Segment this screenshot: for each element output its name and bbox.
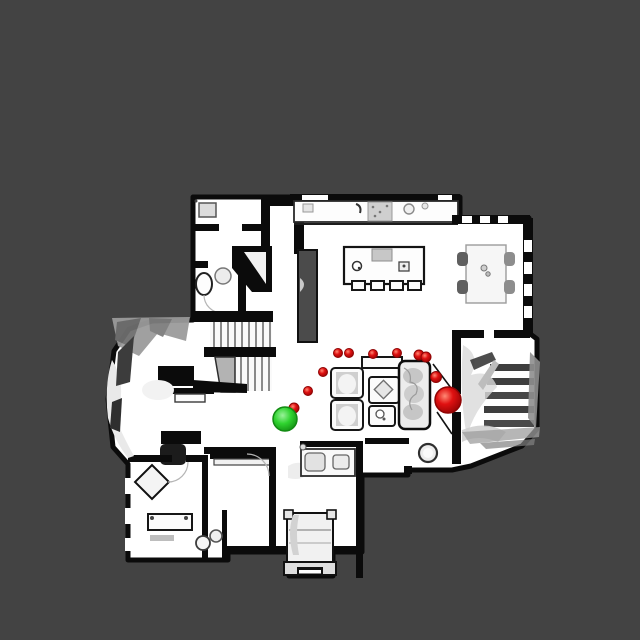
basin <box>210 530 222 542</box>
red-dot-marker-8 <box>304 387 313 396</box>
red-dot-marker-6 <box>421 352 431 362</box>
sofa <box>399 361 430 429</box>
pantry-cabinet <box>298 250 317 342</box>
rug <box>150 535 174 541</box>
red-dot-marker-10 <box>431 372 442 383</box>
toilet <box>196 536 210 550</box>
bathroom-sink <box>215 268 231 284</box>
red-dot-marker-3 <box>369 350 378 359</box>
red-dot-marker-2 <box>345 349 354 358</box>
bed <box>284 510 336 575</box>
island-stool <box>408 281 421 290</box>
side-table <box>369 406 395 426</box>
floorplan-canvas <box>0 0 640 640</box>
console-table <box>362 357 402 368</box>
island-stool <box>371 281 384 290</box>
dining-chair <box>457 252 468 266</box>
toilet <box>196 273 212 295</box>
coffee-table <box>369 377 399 403</box>
red-dot-marker-7 <box>319 368 328 377</box>
floorplan-viewport <box>0 0 640 640</box>
red-dot-marker-4 <box>393 349 402 358</box>
green-sphere-marker <box>273 407 297 431</box>
armchair <box>331 368 363 398</box>
desk <box>161 431 201 444</box>
laundry-sink <box>199 203 216 217</box>
island-stool <box>352 281 365 290</box>
kitchen-sink <box>404 204 414 214</box>
dining-chair <box>504 252 515 266</box>
dining-chair <box>457 280 468 294</box>
island-stool <box>390 281 403 290</box>
armchair <box>331 400 363 430</box>
dining-chair <box>504 280 515 294</box>
shelf <box>175 394 205 402</box>
large-red-sphere-marker <box>435 387 461 413</box>
red-dot-marker-1 <box>334 349 343 358</box>
